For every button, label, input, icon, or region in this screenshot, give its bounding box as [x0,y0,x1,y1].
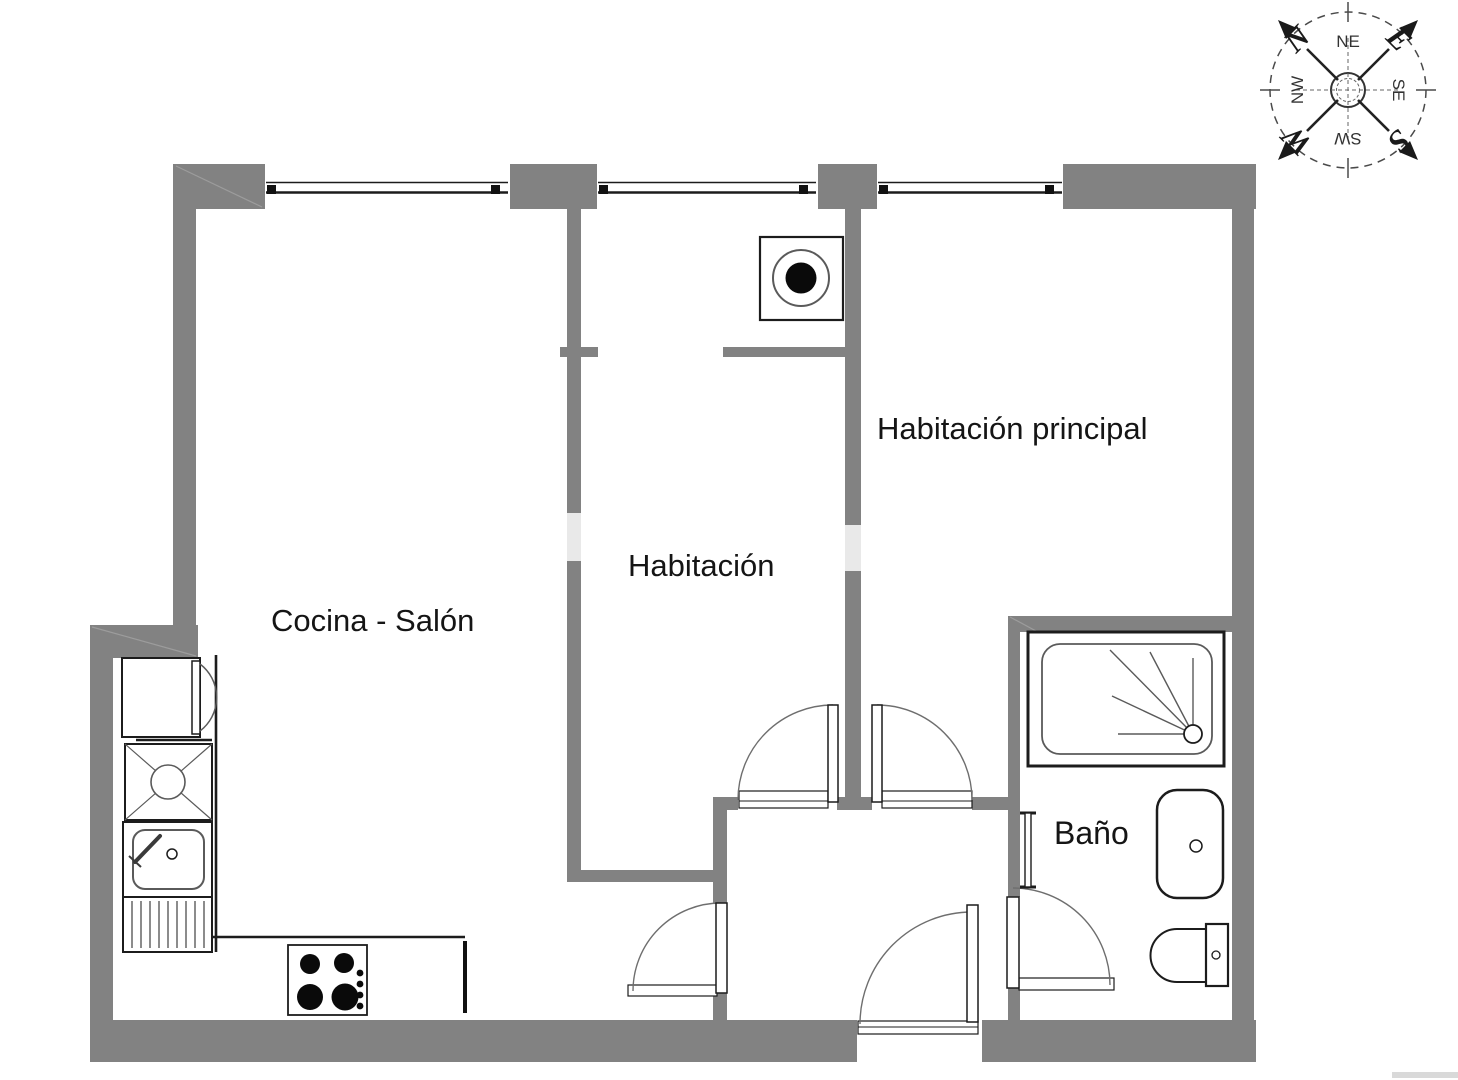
window-habitacion [598,183,816,195]
compass-label-se: SE [1389,79,1408,102]
window-cocina [266,183,508,195]
radiator-fixture [1020,813,1036,887]
door-swing-habitacion [738,705,838,808]
shower-fixture [1028,632,1224,766]
kitchen-sink-fixture [123,822,212,897]
door-swing-entrance [858,905,978,1034]
floor-plan: Cocina - Salón Habitación Habitación pri… [0,0,1458,1080]
washing-machine-fixture [760,237,843,320]
bathroom-sink-fixture [1157,790,1223,898]
wall-chamfer-seams [92,166,1036,656]
compass-label-nw: NW [1288,76,1307,104]
fixtures-layer: N E S W NE SE SW NW [0,0,1458,1080]
compass-rose: N E S W NE SE SW NW [1260,2,1436,178]
door-swing-habitacion-principal [872,705,972,808]
compass-label-ne: NE [1336,32,1360,51]
window-habitacion-principal [878,183,1062,195]
stove-fixture [288,945,367,1015]
door-swing-bano [1007,888,1114,990]
door-swing-cocina [628,903,727,996]
fridge-fixture [122,658,217,740]
compass-label-sw: SW [1334,129,1361,148]
toilet-fixture [1151,924,1229,986]
drainboard-fixture [123,897,212,952]
dishwasher-fixture [125,744,212,820]
